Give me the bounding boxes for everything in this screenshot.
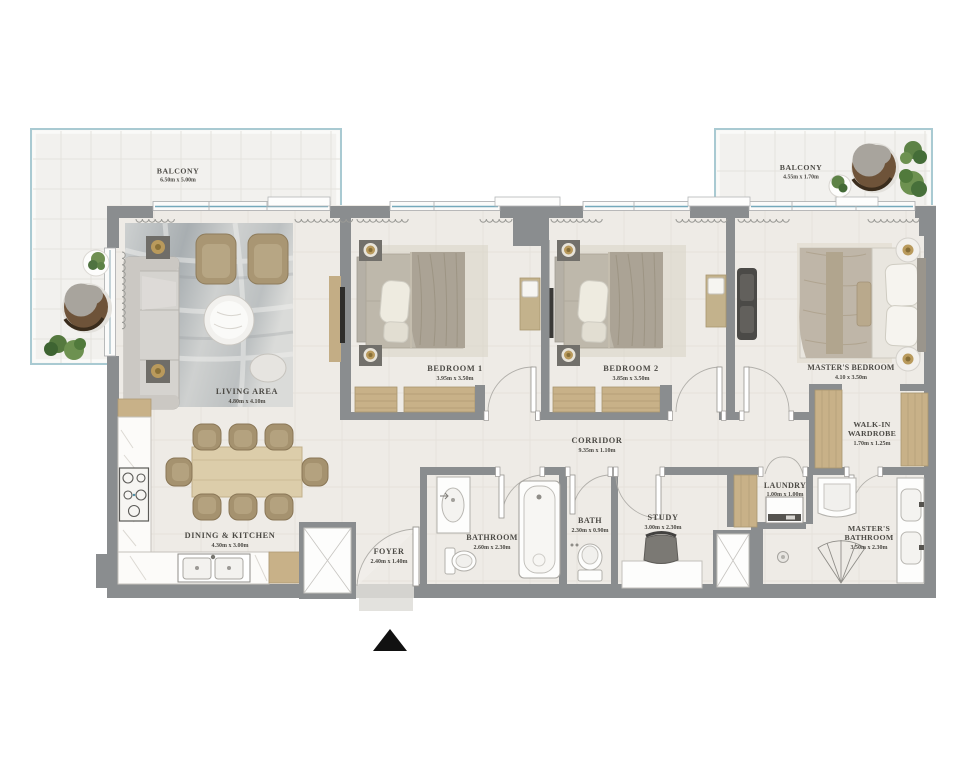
svg-text:LIVING AREA: LIVING AREA [216, 387, 278, 396]
svg-text:CORRIDOR: CORRIDOR [572, 436, 623, 445]
svg-text:4.80m x 4.10m: 4.80m x 4.10m [229, 399, 266, 405]
svg-text:3.85m x 3.50m: 3.85m x 3.50m [613, 376, 650, 382]
svg-text:1.70m x 1.25m: 1.70m x 1.25m [854, 441, 891, 447]
svg-text:LAUNDRY: LAUNDRY [764, 481, 806, 490]
svg-text:6.50m x 5.00m: 6.50m x 5.00m [160, 178, 196, 184]
svg-text:3.00m x 2.30m: 3.00m x 2.30m [645, 525, 682, 531]
svg-text:3.50m x 2.30m: 3.50m x 2.30m [851, 545, 888, 551]
svg-text:BALCONY: BALCONY [157, 167, 200, 176]
svg-text:BATHROOM: BATHROOM [466, 533, 518, 542]
svg-text:MASTER'S: MASTER'S [848, 524, 890, 533]
svg-text:2.30m x 0.90m: 2.30m x 0.90m [572, 528, 609, 534]
svg-text:BATH: BATH [578, 516, 602, 525]
svg-text:4.30m x 3.00m: 4.30m x 3.00m [212, 543, 249, 549]
svg-text:2.60m x 2.30m: 2.60m x 2.30m [474, 545, 511, 551]
svg-text:BATHROOM: BATHROOM [844, 533, 893, 542]
svg-text:BEDROOM 1: BEDROOM 1 [427, 364, 482, 373]
svg-text:3.95m x 3.50m: 3.95m x 3.50m [437, 376, 474, 382]
svg-text:BALCONY: BALCONY [780, 163, 823, 172]
svg-text:FOYER: FOYER [374, 547, 405, 556]
svg-text:4.55m x 1.70m: 4.55m x 1.70m [783, 175, 819, 181]
svg-text:9.35m x 1.10m: 9.35m x 1.10m [579, 448, 616, 454]
svg-text:DINING & KITCHEN: DINING & KITCHEN [185, 531, 276, 540]
svg-text:MASTER'S BEDROOM: MASTER'S BEDROOM [807, 363, 895, 372]
svg-text:STUDY: STUDY [647, 513, 678, 522]
svg-text:WARDROBE: WARDROBE [848, 429, 896, 438]
svg-text:BEDROOM 2: BEDROOM 2 [603, 364, 658, 373]
svg-text:2.40m x 1.40m: 2.40m x 1.40m [371, 559, 408, 565]
svg-text:WALK-IN: WALK-IN [853, 420, 890, 429]
svg-text:4.10 x 3.50m: 4.10 x 3.50m [835, 375, 867, 381]
